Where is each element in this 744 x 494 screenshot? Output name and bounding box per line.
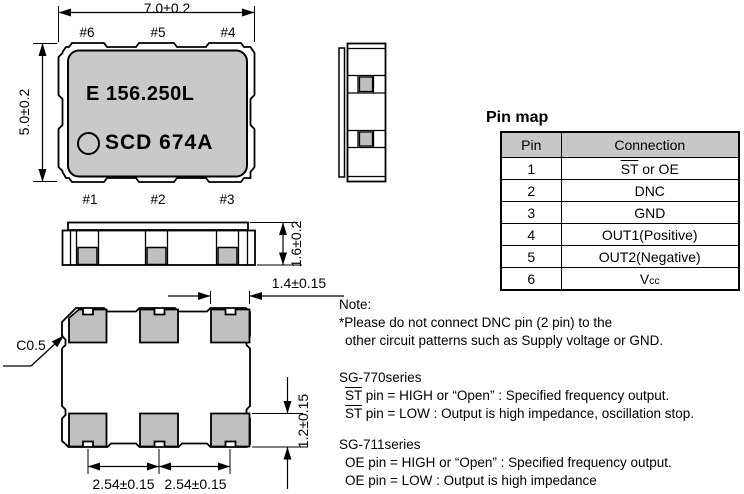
pin-map-header-row: Pin Connection [501, 132, 739, 158]
note-line2: other circuit patterns such as Supply vo… [339, 333, 663, 348]
front-view-lid [68, 223, 248, 231]
pin-number: 1 [501, 158, 561, 180]
arrowhead [284, 401, 292, 414]
pin-map-row: 5 OUT2(Negative) [501, 246, 739, 268]
package-marking-line2: SCD 674A [105, 131, 213, 155]
pin-connection: ST or OE [561, 158, 739, 180]
pin-label-6: #6 [72, 25, 102, 40]
bottom-pad-4 [69, 414, 107, 447]
dim-package-thickness: 1.6±0.2 [288, 214, 304, 274]
dim-pad-height: 1.2±0.15 [295, 389, 311, 453]
pin-map-header-pin: Pin [501, 132, 561, 158]
dim-pad-pitch-2: 2.54±0.15 [158, 476, 233, 492]
arrowhead [39, 169, 47, 182]
front-view-pad [78, 248, 97, 265]
pin-number: 3 [501, 202, 561, 224]
dim-pad-pitch-1: 2.54±0.15 [86, 476, 161, 492]
note-line1: *Please do not connect DNC pin (2 pin) t… [339, 315, 612, 330]
pin-map-table: Pin Connection 1 ST or OE 2 DNC 3 GND 4 … [500, 131, 740, 291]
pin-number: 5 [501, 246, 561, 268]
sg711-line2: OE pin = LOW : Output is high impedance [339, 473, 597, 488]
front-view-pad [147, 248, 166, 265]
arrowhead [59, 9, 72, 17]
top-view-body [68, 51, 247, 177]
dim-chamfer: C0.5 [11, 337, 51, 353]
arrowhead [39, 43, 47, 56]
st-overline: ST [621, 161, 639, 177]
bottom-pad-3 [211, 310, 250, 343]
arrowhead [279, 223, 287, 236]
pin-number: 4 [501, 224, 561, 246]
arrowhead [159, 463, 171, 471]
top-view [59, 43, 255, 182]
note-title: Note: [339, 297, 371, 312]
sg770-line2: ST pin = LOW : Output is high impedance,… [339, 406, 694, 421]
bottom-view [3, 291, 344, 489]
pin-number: 6 [501, 268, 561, 291]
dim-body-width: 7.0±0.2 [122, 0, 212, 16]
side-view-lid [339, 48, 345, 177]
pin-connection: OUT2(Negative) [561, 246, 739, 268]
pin-map-row: 4 OUT1(Positive) [501, 224, 739, 246]
sg711-line1: OE pin = HIGH or “Open” : Specified freq… [339, 455, 672, 470]
pin-map-row: 2 DNC [501, 180, 739, 202]
pin-label-5: #5 [143, 25, 173, 40]
pin-label-2: #2 [143, 192, 173, 207]
pin-map-title: Pin map [486, 109, 548, 127]
sg770-heading: SG-770series [339, 370, 422, 385]
bottom-pad-1 [69, 310, 107, 343]
pin-connection: GND [561, 202, 739, 224]
pin-label-1: #1 [75, 192, 105, 207]
side-view-pad [360, 132, 373, 146]
pin-map-row: 3 GND [501, 202, 739, 224]
notes-section: Note: *Please do not connect DNC pin (2 … [339, 297, 739, 492]
arrowhead [250, 292, 263, 300]
arrowhead [218, 463, 230, 471]
arrowhead [147, 463, 159, 471]
pin-map-row: 1 ST or OE [501, 158, 739, 180]
vcc-subscript: cc [649, 275, 660, 287]
st-overline: ST [345, 406, 362, 421]
pin-connection: DNC [561, 180, 739, 202]
side-view [339, 44, 386, 182]
datasheet-page: 7.0±0.2 5.0±0.2 1.6±0.2 1.4±0.15 1.2±0.1… [0, 0, 744, 494]
pin-label-3: #3 [212, 192, 242, 207]
front-view-pad [218, 248, 237, 265]
pin-connection: OUT1(Positive) [561, 224, 739, 246]
bottom-pad-6 [211, 414, 250, 447]
package-marking-line1: E 156.250L [86, 83, 194, 106]
sg770-line1: ST pin = HIGH or “Open” : Specified freq… [339, 388, 669, 403]
pin-connection: Vcc [561, 268, 739, 291]
arrowhead [279, 253, 287, 266]
pin-label-4: #4 [213, 25, 243, 40]
st-overline: ST [345, 388, 362, 403]
arrowhead [284, 447, 292, 460]
dim-body-height: 5.0±0.2 [16, 82, 32, 142]
pin-number: 2 [501, 180, 561, 202]
side-view-pad [360, 77, 373, 92]
pin-map-header-connection: Connection [561, 132, 739, 158]
pin-map-row: 6 Vcc [501, 268, 739, 291]
arrowhead [242, 9, 255, 17]
arrowhead [198, 292, 211, 300]
sg711-heading: SG-711series [339, 437, 421, 452]
bottom-pad-2 [140, 310, 178, 343]
front-view [63, 223, 303, 266]
dim-pad-width: 1.4±0.15 [261, 275, 337, 291]
side-view-body [348, 44, 386, 182]
arrowhead [88, 463, 100, 471]
bottom-pad-5 [140, 414, 178, 447]
